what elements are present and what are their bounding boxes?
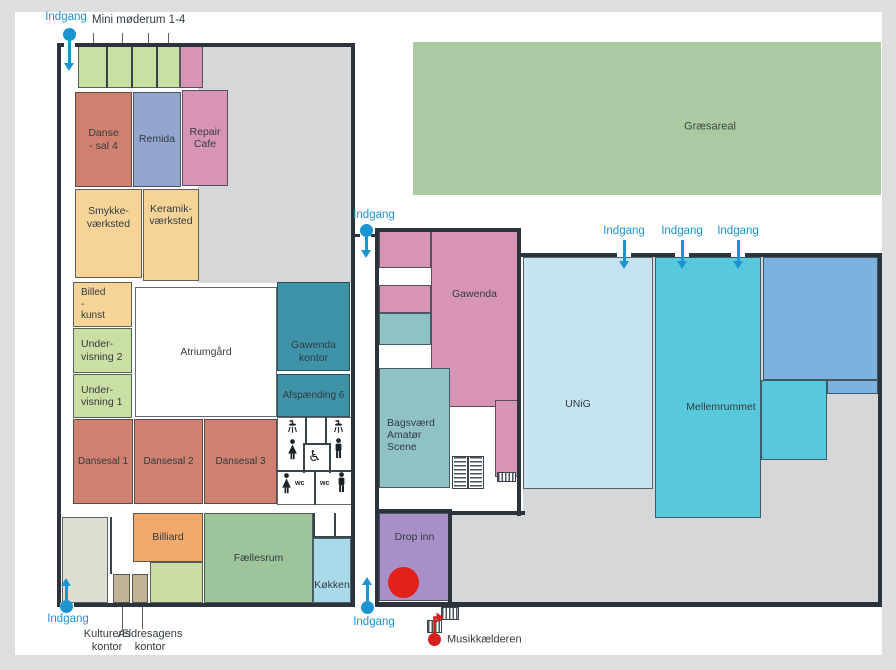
keramikvaerksted: Keramik- værksted [143, 189, 199, 281]
undervisning-2-label: Under- visning 2 [81, 338, 122, 362]
building-wall [57, 43, 355, 47]
entrance-arrow-icon [65, 585, 68, 600]
entrance-label: Indgang [47, 613, 89, 625]
mellemrummet-label: Mellemrummet [686, 401, 755, 413]
bagsvaerd-amatoer-scene-label: Bagsværd Amatør Scene [387, 417, 435, 453]
middle-room-2 [379, 285, 431, 313]
billedkunst-label: Billed - kunst [81, 287, 105, 322]
building-wall [57, 43, 61, 607]
gawenda-label: Gawenda [452, 288, 497, 300]
undervisning-2: Under- visning 2 [73, 328, 132, 373]
entrance-label: Indgang [353, 209, 395, 221]
building-wall [520, 253, 882, 257]
blue-room [763, 257, 878, 380]
undervisning-1-label: Under- visning 1 [81, 384, 122, 408]
atriumgaard-label: Atriumgård [180, 346, 231, 358]
callout-line [142, 607, 143, 629]
shower-icon [286, 419, 299, 436]
callout-line [122, 33, 123, 43]
koekken: Køkken [313, 538, 351, 603]
wc-label: wc [295, 480, 304, 487]
entrance-arrow-icon [681, 240, 684, 262]
entrance-pin-icon [360, 224, 373, 237]
entrance-pin-icon [361, 601, 374, 614]
interior-wall [131, 46, 133, 88]
stairs-small-east-icon [497, 472, 516, 482]
interior-wall [313, 536, 351, 538]
dansesal-2: Dansesal 2 [134, 419, 203, 504]
entrance-label: Indgang [603, 225, 645, 237]
drop-inn-marker [388, 567, 419, 598]
stair-divider [467, 457, 469, 488]
dansesal-4: Danse - sal 4 [75, 92, 132, 187]
entrance-arrow-icon [623, 240, 626, 262]
entrance-arrow-icon [365, 236, 368, 251]
female-icon [281, 473, 292, 494]
unig: UNiG [523, 257, 653, 489]
male-icon [336, 472, 347, 493]
dansesal-1-label: Dansesal 1 [78, 456, 128, 468]
storage-room [62, 517, 108, 603]
wc-label: wc [320, 480, 329, 487]
middle-room-3 [379, 313, 431, 345]
entrance-label: Indgang [661, 225, 703, 237]
dansesal-3-label: Dansesal 3 [215, 456, 265, 468]
entrance-arrowhead-icon [64, 63, 74, 71]
billiard: Billiard [133, 513, 203, 562]
entrance-label: Indgang [353, 616, 395, 628]
female-icon [287, 439, 298, 460]
interior-wall [305, 417, 307, 445]
wheelchair-icon: ♿ [308, 447, 321, 465]
musikkaelderen-arrow-icon [424, 603, 446, 637]
entrance-arrow-icon [68, 41, 71, 64]
interior-wall [313, 513, 315, 538]
bagsvaerd-amatoer-scene: Bagsværd Amatør Scene [379, 368, 450, 488]
mellemrummet: Mellemrummet [655, 257, 761, 518]
middle-room-4 [495, 400, 518, 477]
mellemrummet-extension [761, 380, 827, 460]
dansesal-2-label: Dansesal 2 [143, 456, 193, 468]
male-icon [333, 438, 344, 459]
atriumgaard: Atriumgård [135, 287, 277, 417]
unig-label: UNiG [565, 398, 591, 410]
faellesrum: Fællesrum [204, 513, 313, 603]
blue-room-step [827, 380, 878, 394]
repair-cafe: Repair Cafe [182, 90, 228, 186]
afspaending-6-label: Afspænding 6 [283, 390, 345, 402]
koekken-label: Køkken [314, 579, 350, 591]
stair-flight [470, 457, 482, 488]
shower-icon [332, 419, 345, 436]
callout-line [122, 607, 123, 629]
entrance-arrowhead-icon [619, 261, 629, 269]
middle-room-1 [379, 230, 431, 268]
mini-moederum-rooms [78, 46, 180, 88]
entrance-arrowhead-icon [733, 261, 743, 269]
gawenda-kontor: Gawenda kontor [277, 282, 350, 371]
activity-room [150, 562, 203, 603]
billiard-label: Billiard [152, 531, 184, 543]
floor-plan-canvas: Danse - sal 4RemidaRepair CafeSmykke- væ… [0, 0, 896, 670]
aeldresagens-kontor-room [132, 574, 148, 603]
callout-line [93, 33, 94, 43]
entrance-arrowhead-icon [362, 577, 372, 585]
gawenda-kontor-label: Gawenda kontor [291, 339, 336, 363]
interior-wall [110, 517, 112, 574]
mini-moederum-label: Mini møderum 1-4 [92, 14, 185, 28]
building-wall [371, 234, 379, 237]
building-wall [375, 228, 521, 232]
building-wall [375, 509, 452, 513]
interior-wall [334, 513, 336, 537]
drop-inn-label: Drop inn [395, 531, 435, 543]
dansesal-4-label: Danse - sal 4 [88, 127, 118, 151]
building-wall [375, 228, 379, 607]
entrance-arrowhead-icon [61, 578, 71, 586]
interior-wall [156, 46, 158, 88]
interior-wall [106, 46, 108, 88]
building-wall [448, 511, 452, 607]
afspaending-6: Afspænding 6 [277, 374, 350, 417]
interior-wall [303, 443, 305, 473]
building-wall [878, 253, 882, 607]
stairs-middle-building-icon [452, 456, 484, 489]
smykkevaerksted: Smykke- værksted [75, 189, 142, 278]
musikkaelderen-label: Musikkælderen [447, 634, 522, 647]
interior-wall [325, 417, 327, 445]
graesareal-area [413, 42, 881, 195]
repair-cafe-label: Repair Cafe [190, 126, 221, 150]
building-wall [351, 234, 360, 237]
faellesrum-label: Fællesrum [234, 552, 284, 564]
floor-plan: Danse - sal 4RemidaRepair CafeSmykke- væ… [0, 0, 896, 670]
entrance-pin-icon [60, 600, 73, 613]
callout-line [148, 33, 149, 43]
dansesal-3: Dansesal 3 [204, 419, 277, 504]
interior-wall [329, 443, 331, 473]
building-wall [517, 228, 521, 516]
building-wall [351, 43, 355, 607]
entrance-arrow-icon [366, 584, 369, 601]
entrance-arrow-icon [737, 240, 740, 262]
undervisning-1: Under- visning 1 [73, 374, 132, 418]
right-building-interior-lower [452, 513, 878, 603]
entrance-label: Indgang [45, 11, 87, 23]
interior-wall [314, 470, 316, 505]
entrance-label: Indgang [717, 225, 759, 237]
building-wall [450, 511, 525, 515]
kulturens-kontor-room [113, 574, 130, 603]
entrance-pin-icon [63, 28, 76, 41]
keramikvaerksted-label: Keramik- værksted [149, 203, 192, 227]
remida: Remida [133, 92, 181, 187]
graesareal-label: Græsareal [684, 121, 736, 134]
aeldresagens-kontor-label: Ældresagens kontor [118, 628, 183, 654]
remida-label: Remida [139, 133, 175, 145]
stair-flight [454, 457, 466, 488]
dansesal-1: Dansesal 1 [73, 419, 133, 504]
entrance-arrowhead-icon [361, 250, 371, 258]
mini-room-pink [180, 46, 203, 88]
callout-line [168, 33, 169, 43]
smykkevaerksted-label: Smykke- værksted [87, 205, 130, 229]
billedkunst: Billed - kunst [73, 282, 132, 327]
building-wall [57, 603, 355, 607]
entrance-arrowhead-icon [677, 261, 687, 269]
